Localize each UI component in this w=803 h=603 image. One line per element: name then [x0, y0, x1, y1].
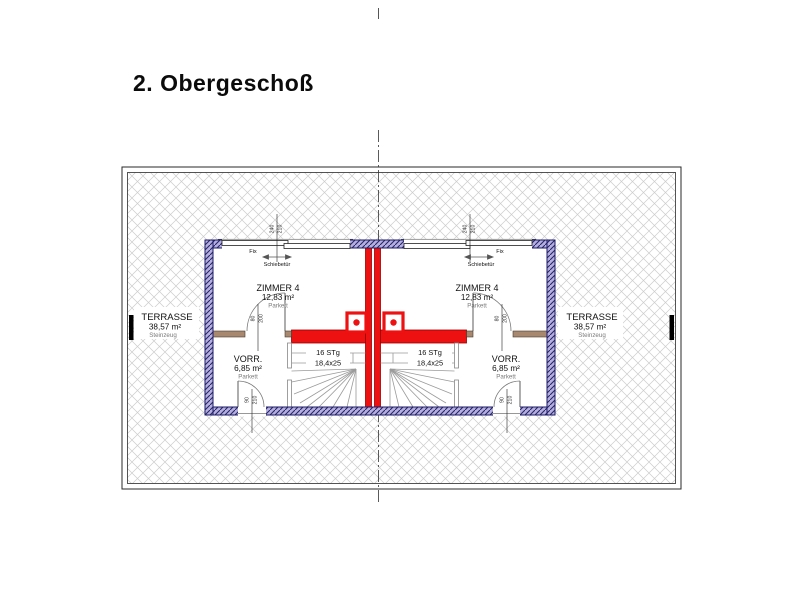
room-floor: Parkett	[268, 303, 288, 310]
sliding-glazing-left	[284, 244, 350, 249]
room-name: ZIMMER 4	[455, 283, 498, 293]
terrace-name: TERRASSE	[141, 312, 192, 323]
sliding-glazing-right	[404, 244, 470, 249]
hall-floor: Parkett	[496, 374, 516, 381]
terrace-floor: Steinzeug	[149, 332, 177, 339]
section-mark-right	[670, 315, 675, 340]
terrace-name: TERRASSE	[566, 312, 617, 323]
window-width-dim-left: 240	[270, 225, 276, 234]
window-left	[218, 239, 353, 249]
floor-plan-drawing: 240 210 240 210 80 200 80 200 90 210 90 …	[0, 0, 803, 603]
fix-window-label-left: Fix	[249, 249, 257, 255]
room-area: 12,83 m²	[461, 293, 494, 302]
room-door-width-dim-right: 80	[495, 316, 501, 322]
section-mark-left	[129, 315, 134, 340]
fixed-glazing-right	[466, 241, 532, 246]
room-door-height-dim-right: 200	[503, 314, 509, 323]
wall-east	[547, 240, 555, 415]
terrace-floor: Steinzeug	[578, 332, 606, 339]
stair-tread-right: 18,4x25	[417, 359, 443, 368]
hall-name: VORR.	[234, 354, 263, 364]
terrace-door-width-dim-left: 90	[245, 397, 251, 403]
terrace-door-height-dim-right: 210	[508, 396, 514, 405]
floor-plan-page: 2. Obergeschoß	[0, 0, 803, 603]
wall-west	[205, 240, 213, 415]
room-door-height-dim-left: 200	[259, 314, 265, 323]
terrace-area: 38,57 m²	[574, 323, 607, 332]
window-height-dim-right: 210	[471, 225, 477, 234]
window-height-dim-left: 210	[278, 225, 284, 234]
window-width-dim-right: 240	[463, 225, 469, 234]
hall-floor: Parkett	[238, 374, 258, 381]
room-name: ZIMMER 4	[256, 283, 299, 293]
sliding-door-label-left: Schiebetür	[264, 262, 291, 268]
fixed-glazing-left	[222, 241, 288, 246]
column-dot-right	[390, 319, 396, 325]
stair-tread-left: 18,4x25	[315, 359, 341, 368]
room-area: 12,83 m²	[262, 293, 295, 302]
hall-name: VORR.	[492, 354, 521, 364]
window-right	[401, 239, 536, 249]
stair-count-right: 16 STg	[418, 348, 442, 357]
sliding-door-label-right: Schiebetür	[468, 262, 495, 268]
column-dot-left	[353, 319, 359, 325]
stair-count-left: 16 STg	[316, 348, 340, 357]
terrace-door-width-dim-right: 90	[500, 397, 506, 403]
terrace-area: 38,57 m²	[149, 323, 182, 332]
hall-area: 6,85 m²	[234, 364, 262, 373]
hall-area: 6,85 m²	[492, 364, 520, 373]
fix-window-label-right: Fix	[496, 249, 504, 255]
room-door-width-dim-left: 80	[251, 316, 257, 322]
room-floor: Parkett	[467, 303, 487, 310]
terrace-door-height-dim-left: 210	[253, 396, 259, 405]
